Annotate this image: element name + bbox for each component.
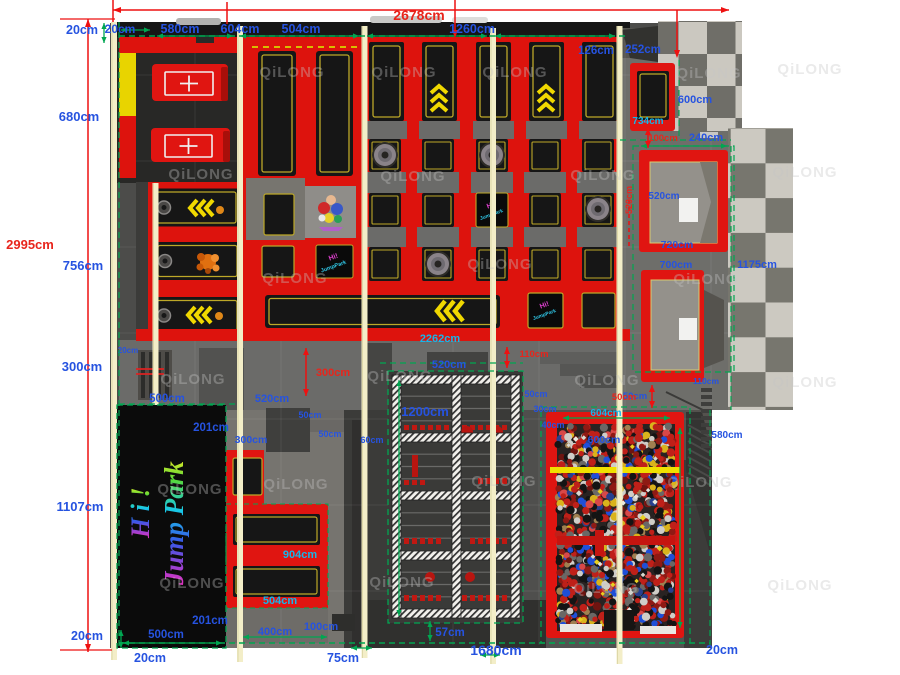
svg-text:50cm: 50cm	[298, 410, 321, 420]
svg-text:QiLONG: QiLONG	[168, 166, 233, 183]
svg-text:20cm: 20cm	[71, 629, 103, 643]
svg-text:50cm: 50cm	[524, 389, 547, 399]
svg-text:520cm: 520cm	[648, 191, 679, 202]
svg-text:QiLONG: QiLONG	[367, 368, 432, 385]
svg-text:580cm: 580cm	[711, 430, 742, 441]
svg-text:QiLONG: QiLONG	[772, 374, 837, 391]
svg-text:2995cm: 2995cm	[6, 237, 54, 252]
svg-text:201cm: 201cm	[192, 615, 228, 627]
svg-text:756cm: 756cm	[63, 258, 103, 273]
svg-text:1260cm: 1260cm	[449, 22, 495, 36]
svg-text:H i !: H i !	[126, 487, 155, 539]
svg-text:40cm: 40cm	[541, 420, 564, 430]
svg-text:QiLONG: QiLONG	[159, 575, 224, 592]
svg-text:201cm: 201cm	[193, 422, 229, 434]
svg-text:500cm: 500cm	[148, 629, 184, 641]
svg-text:1107cm: 1107cm	[57, 499, 104, 514]
svg-text:75cm: 75cm	[327, 651, 359, 665]
svg-text:QiLONG: QiLONG	[767, 577, 832, 594]
svg-text:100cm: 100cm	[648, 133, 678, 144]
svg-text:QiLONG: QiLONG	[160, 371, 225, 388]
svg-text:QiLONG: QiLONG	[676, 65, 741, 82]
svg-text:QiLONG: QiLONG	[471, 473, 536, 490]
svg-text:700cm: 700cm	[660, 259, 693, 271]
svg-text:QiLONG: QiLONG	[777, 61, 842, 78]
svg-text:100cm: 100cm	[304, 621, 338, 633]
svg-text:20cm: 20cm	[118, 346, 138, 355]
svg-text:400cm: 400cm	[258, 626, 292, 638]
svg-text:QiLONG: QiLONG	[263, 476, 328, 493]
svg-text:20cm: 20cm	[66, 23, 98, 37]
svg-text:QiLONG: QiLONG	[371, 64, 436, 81]
svg-text:QiLONG: QiLONG	[573, 580, 638, 597]
svg-text:600cm: 600cm	[678, 94, 712, 106]
svg-text:20cm: 20cm	[706, 643, 738, 657]
svg-text:126cm: 126cm	[578, 45, 614, 57]
svg-text:734cm: 734cm	[632, 116, 663, 127]
svg-text:Jump Park: Jump Park	[159, 461, 189, 586]
svg-text:20cm: 20cm	[134, 651, 166, 665]
svg-text:QiLONG: QiLONG	[369, 574, 434, 591]
svg-text:QiLONG: QiLONG	[467, 256, 532, 273]
svg-text:520cm: 520cm	[255, 393, 289, 405]
svg-text:520cm: 520cm	[624, 186, 634, 214]
svg-text:2262cm: 2262cm	[420, 333, 461, 345]
svg-text:QiLONG: QiLONG	[570, 167, 635, 184]
svg-text:600cm: 600cm	[588, 434, 621, 446]
svg-text:504cm: 504cm	[263, 595, 297, 607]
svg-text:QiLONG: QiLONG	[667, 474, 732, 491]
svg-text:30cm: 30cm	[533, 404, 556, 414]
svg-text:QiLONG: QiLONG	[574, 372, 639, 389]
svg-text:720cm: 720cm	[661, 239, 694, 251]
svg-text:QiLONG: QiLONG	[259, 64, 324, 81]
svg-text:QiLONG: QiLONG	[157, 481, 222, 498]
svg-text:2678cm: 2678cm	[393, 7, 444, 23]
svg-text:252cm: 252cm	[625, 44, 661, 56]
svg-text:57cm: 57cm	[435, 627, 464, 639]
svg-text:QiLONG: QiLONG	[673, 271, 738, 288]
svg-text:500cm: 500cm	[149, 393, 185, 405]
svg-text:1680cm: 1680cm	[470, 642, 521, 658]
svg-text:50cm: 50cm	[318, 429, 341, 439]
svg-text:110cm: 110cm	[693, 376, 719, 386]
svg-text:50cm: 50cm	[612, 392, 636, 403]
svg-text:60cm: 60cm	[360, 435, 383, 445]
svg-text:QiLONG: QiLONG	[772, 164, 837, 181]
svg-text:604cm: 604cm	[221, 22, 260, 36]
svg-text:300cm: 300cm	[316, 367, 350, 379]
svg-text:300cm: 300cm	[235, 434, 268, 446]
svg-text:240cm: 240cm	[689, 132, 723, 144]
svg-text:QiLONG: QiLONG	[262, 270, 327, 287]
svg-text:1200cm: 1200cm	[401, 404, 449, 419]
svg-text:520cm: 520cm	[432, 359, 466, 371]
svg-text:680cm: 680cm	[59, 109, 99, 124]
svg-text:QiLONG: QiLONG	[380, 168, 445, 185]
svg-text:904cm: 904cm	[283, 549, 317, 561]
svg-text:504cm: 504cm	[282, 22, 321, 36]
svg-text:20cm: 20cm	[105, 22, 136, 36]
svg-text:300cm: 300cm	[62, 359, 102, 374]
svg-text:1175cm: 1175cm	[737, 259, 777, 271]
svg-text:604cm: 604cm	[590, 408, 621, 419]
svg-text:580cm: 580cm	[161, 22, 200, 36]
svg-text:110cm: 110cm	[519, 349, 548, 360]
svg-text:QiLONG: QiLONG	[482, 64, 547, 81]
